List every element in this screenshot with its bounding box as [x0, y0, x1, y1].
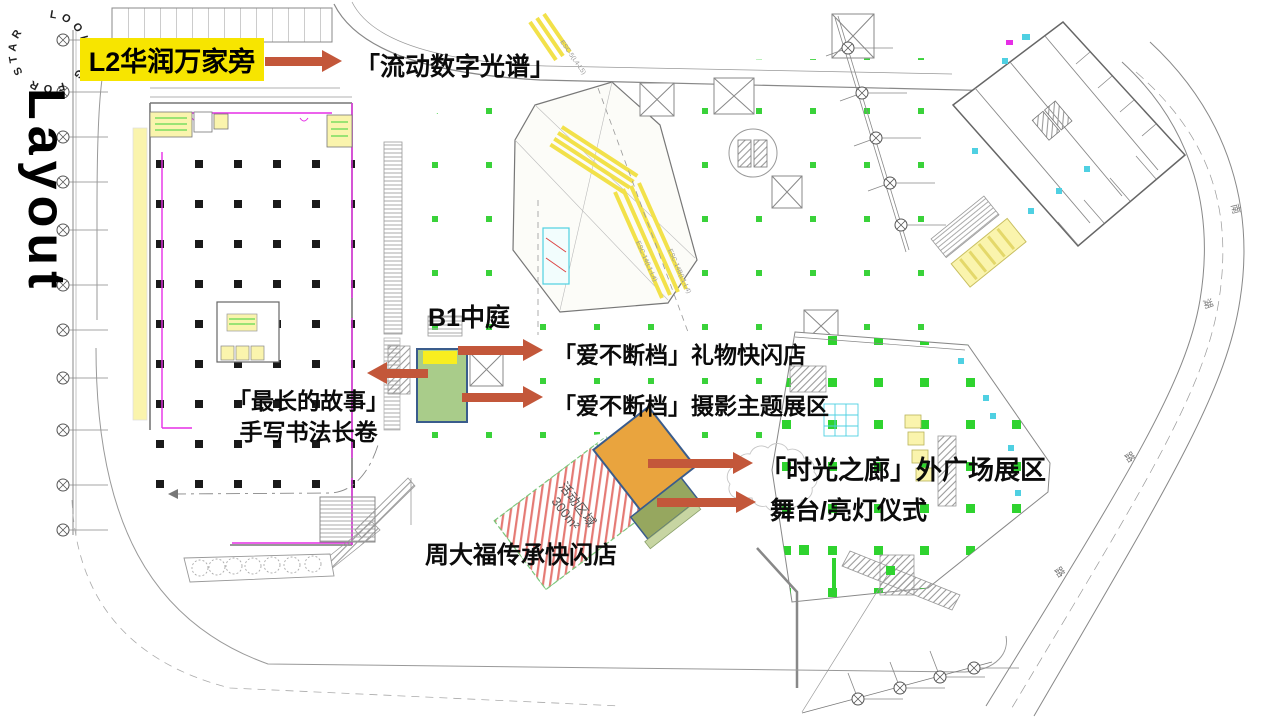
office-tower [931, 22, 1185, 287]
time-corridor-label: 「时光之廊」外广场展区 [760, 450, 1046, 487]
arrow-to-calligraphy [386, 369, 428, 378]
photo-zone-label: 「爱不断档」摄影主题展区 [553, 387, 829, 421]
slide-canvas: ESC-5(L4-L5) ESC-14(L1-L4) ESC-14B(L1-L4… [0, 0, 1280, 720]
svg-text:路: 路 [1122, 449, 1138, 465]
svg-text:湖: 湖 [1200, 297, 1215, 311]
gift-popup-label: 「爱不断档」礼物快闪店 [553, 336, 806, 370]
b1-atrium-label: B1中庭 [428, 298, 510, 334]
svg-text:南: 南 [1228, 202, 1243, 215]
arrow-to-photo-zone [462, 393, 524, 402]
digital-spectrum-label: 「流动数字光谱」 [355, 47, 555, 83]
ctf-popup-label: 周大福传承快闪店 [425, 535, 617, 570]
main-building [133, 103, 375, 545]
calligraphy-label: 「最长的故事」 手写书法长卷 [228, 386, 389, 448]
cyan-escalator [543, 228, 569, 284]
calligraphy-line1: 「最长的故事」 [228, 386, 389, 417]
road-name-labels: 南 湖 路 路 [1052, 202, 1244, 580]
stage-label: 舞台/亮灯仪式 [770, 491, 927, 527]
calligraphy-line2: 手写书法长卷 [228, 417, 389, 448]
l2-entry-highlight: L2华润万家旁 [80, 38, 264, 81]
building-core [217, 302, 279, 362]
layout-side-title: Layout [16, 88, 76, 294]
arrow-to-digital-spectrum [265, 57, 323, 66]
revolving-door [729, 129, 777, 177]
parking-row [112, 8, 332, 42]
arrow-to-gift-popup [458, 346, 524, 355]
tower-magenta-mark [1006, 40, 1013, 45]
top-service-rooms [150, 112, 352, 147]
arrow-to-time-corridor [648, 459, 734, 468]
b1-atrium-marker [417, 349, 467, 422]
planter-row [184, 554, 334, 582]
arrow-to-stage [657, 498, 737, 507]
